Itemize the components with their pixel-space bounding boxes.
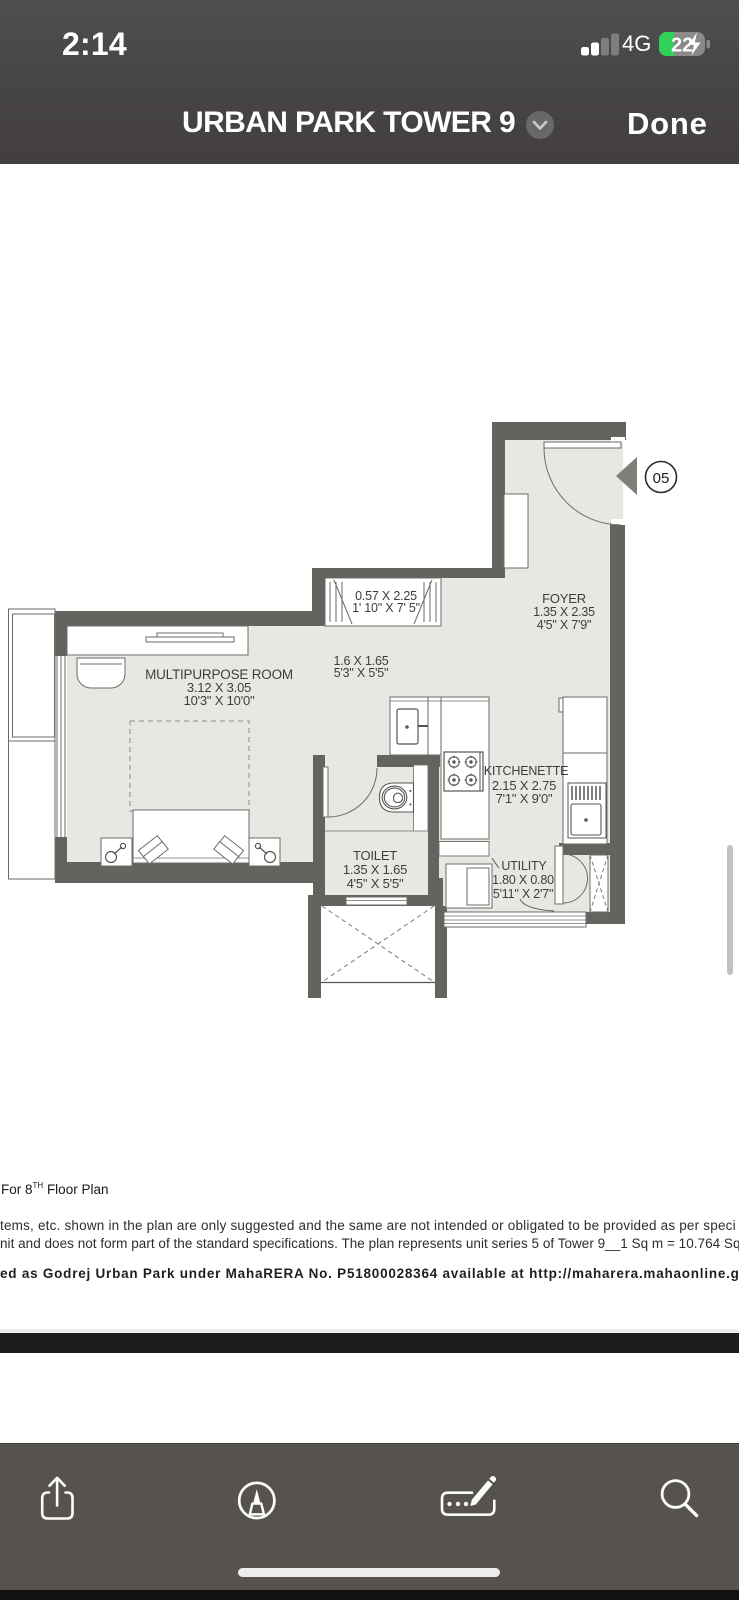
svg-text:TOILET: TOILET	[353, 848, 397, 863]
svg-text:5'11" X 2'7": 5'11" X 2'7"	[493, 887, 553, 901]
svg-text:05: 05	[653, 470, 670, 487]
svg-text:1.80 X 0.80: 1.80 X 0.80	[492, 873, 554, 887]
svg-text:KITCHENETTE: KITCHENETTE	[484, 764, 569, 778]
svg-text:1.35 X 2.35: 1.35 X 2.35	[533, 605, 595, 619]
svg-text:4'5" X 7'9": 4'5" X 7'9"	[537, 618, 592, 632]
svg-text:UTILITY: UTILITY	[501, 859, 547, 873]
svg-text:1.35 X 1.65: 1.35 X 1.65	[343, 862, 407, 877]
svg-text:10'3" X 10'0": 10'3" X 10'0"	[184, 693, 255, 708]
svg-text:5'3" X 5'5": 5'3" X 5'5"	[334, 666, 389, 680]
svg-text:1' 10" X 7' 5": 1' 10" X 7' 5"	[352, 601, 420, 615]
svg-text:FOYER: FOYER	[542, 591, 586, 606]
svg-text:7'1" X 9'0": 7'1" X 9'0"	[496, 791, 553, 806]
svg-text:4'5" X 5'5": 4'5" X 5'5"	[347, 876, 404, 891]
